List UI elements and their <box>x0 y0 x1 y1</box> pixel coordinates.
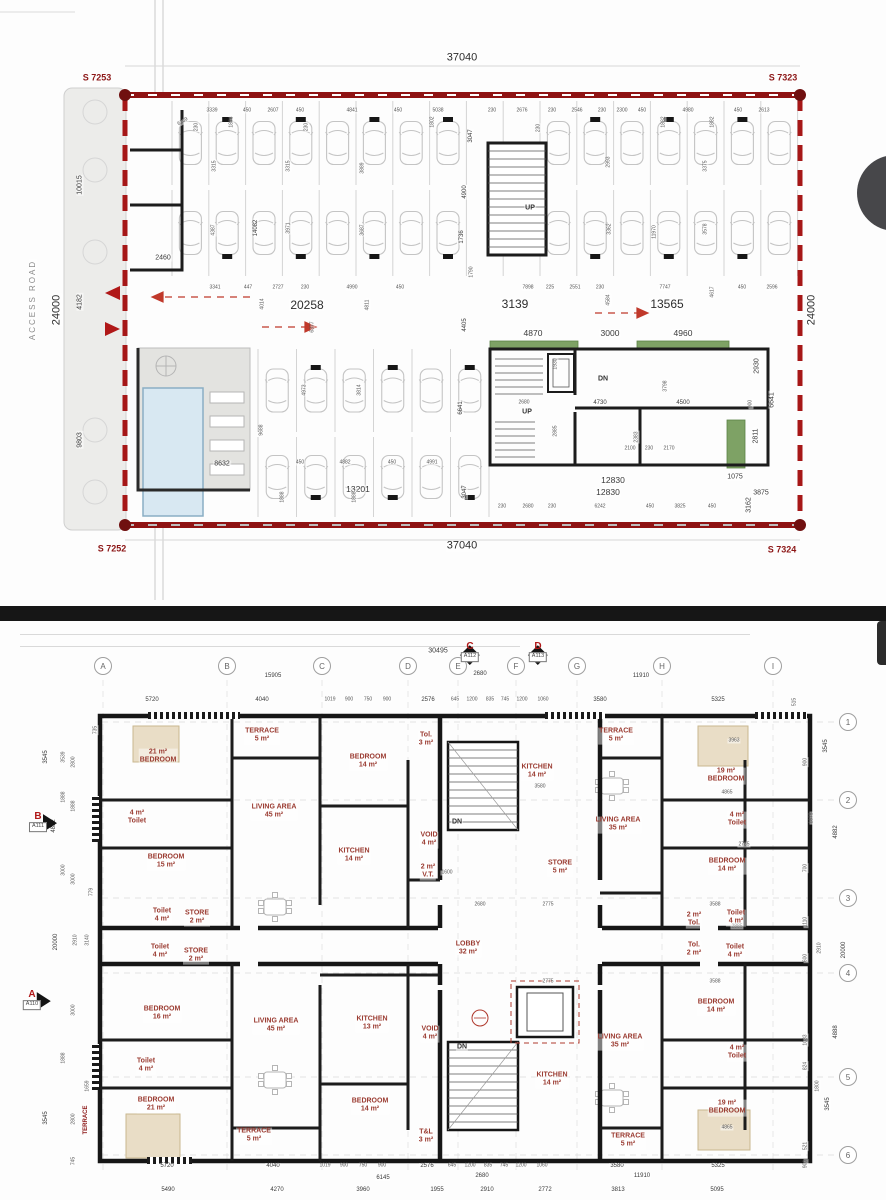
wall-hatch <box>148 712 240 719</box>
wall-hatch <box>92 1044 99 1090</box>
wall-hatch <box>755 712 807 719</box>
floor-plan-drawing <box>0 0 886 1200</box>
edge-scroll-handle[interactable] <box>877 621 886 665</box>
wall-hatch <box>92 796 99 842</box>
stair-cores <box>448 742 518 1130</box>
dining-tables <box>259 772 629 1113</box>
keynote-circle <box>472 1010 488 1026</box>
wall-hatch <box>147 1157 192 1164</box>
elevator <box>511 981 579 1043</box>
wall-hatch <box>545 712 605 719</box>
drawing-sheet: 37040370402400024000ACCESS ROAD100154182… <box>0 0 886 1200</box>
